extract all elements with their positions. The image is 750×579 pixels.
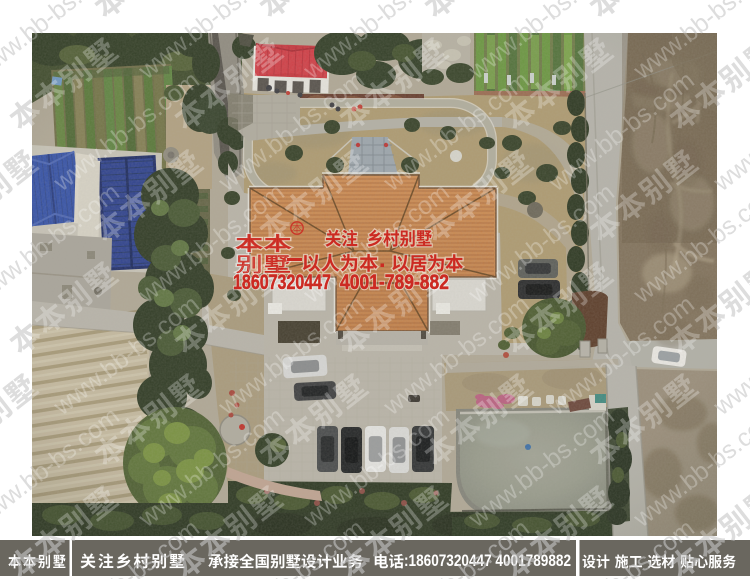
svg-text:18607320447: 18607320447	[233, 271, 331, 294]
svg-text:4001-789-882: 4001-789-882	[340, 271, 449, 294]
